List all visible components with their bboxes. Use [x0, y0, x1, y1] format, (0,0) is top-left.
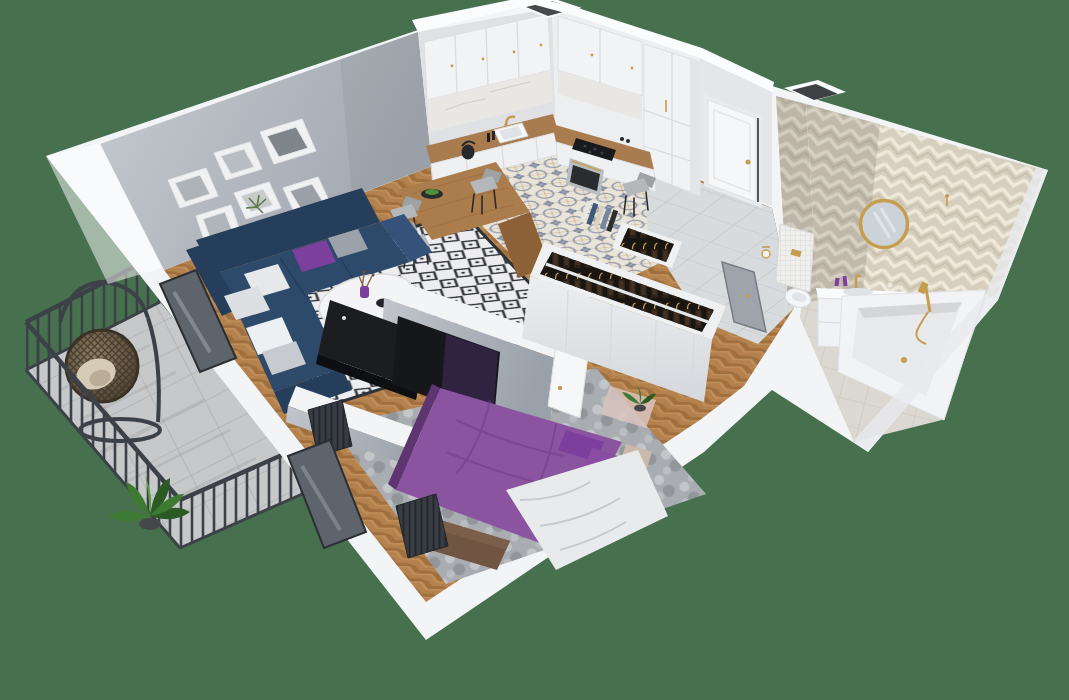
floorplan-render: 3D isometric floor plan render of a one-…	[0, 0, 1069, 700]
fruit-bowl	[421, 189, 443, 199]
door-handle	[746, 160, 751, 165]
bottle	[487, 133, 490, 142]
mirror	[861, 201, 908, 248]
purple-vase	[360, 286, 369, 298]
tub-drain	[901, 357, 907, 363]
